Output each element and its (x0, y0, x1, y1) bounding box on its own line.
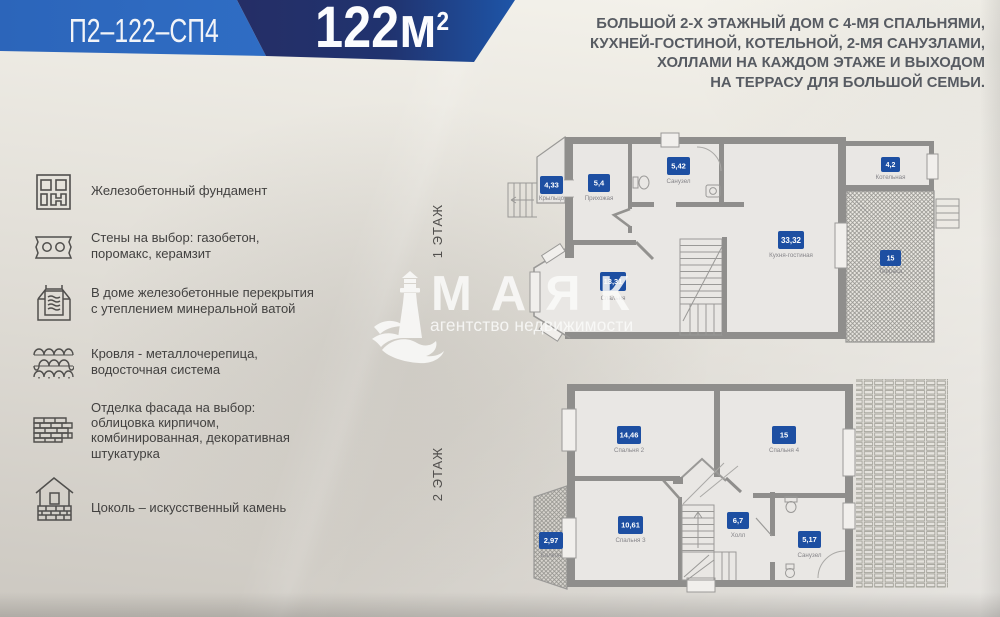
svg-text:15: 15 (780, 431, 788, 440)
svg-text:Балкон: Балкон (541, 552, 562, 559)
svg-text:4,2: 4,2 (886, 162, 896, 169)
svg-text:МАЯК: МАЯК (431, 267, 648, 321)
svg-text:5,17: 5,17 (802, 535, 817, 544)
svg-text:Спальня 2: Спальня 2 (614, 447, 645, 454)
svg-text:6,7: 6,7 (733, 516, 743, 525)
svg-text:15: 15 (887, 256, 895, 263)
svg-text:агентство недвижимости: агентство недвижимости (430, 315, 633, 335)
svg-text:Котельная: Котельная (876, 174, 906, 181)
svg-text:5,42: 5,42 (671, 162, 686, 171)
svg-text:4,33: 4,33 (544, 181, 559, 190)
svg-text:Холл: Холл (731, 532, 746, 539)
svg-text:Санузел: Санузел (797, 552, 821, 559)
svg-text:Спальня 3: Спальня 3 (615, 537, 646, 544)
svg-text:Крыльцо: Крыльцо (539, 195, 565, 202)
svg-text:Кухня-гостиная: Кухня-гостиная (769, 252, 813, 259)
svg-text:10,61: 10,61 (621, 521, 640, 530)
svg-text:33,32: 33,32 (781, 236, 802, 245)
svg-text:Спальня 4: Спальня 4 (769, 447, 800, 454)
svg-text:Прихожая: Прихожая (585, 195, 614, 202)
svg-text:14,46: 14,46 (620, 431, 639, 440)
svg-text:5,4: 5,4 (594, 179, 605, 188)
svg-text:Санузел: Санузел (666, 178, 690, 185)
svg-text:2,97: 2,97 (544, 536, 559, 545)
svg-text:Терраса: Терраса (879, 268, 903, 275)
